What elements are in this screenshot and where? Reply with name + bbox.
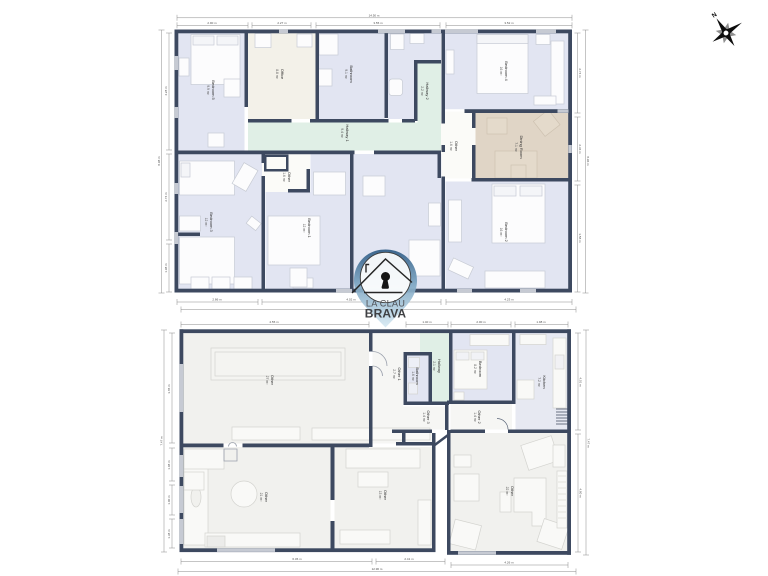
svg-text:Other: Other [510,486,515,497]
svg-text:4.02 m: 4.02 m [346,298,356,302]
svg-text:1.6 m²: 1.6 m² [411,371,415,381]
svg-text:7.1 m²: 7.1 m² [514,142,518,152]
svg-text:2.36 m: 2.36 m [578,144,582,154]
svg-text:8.98 m: 8.98 m [157,156,161,166]
svg-text:Bedroom 3: Bedroom 3 [209,212,214,232]
svg-text:3.58 m: 3.58 m [578,233,582,243]
svg-text:1.98 m: 1.98 m [164,263,168,273]
svg-text:BRAVA: BRAVA [365,307,407,321]
svg-text:12 m²: 12 m² [302,224,306,234]
svg-text:27 m²: 27 m² [265,376,269,386]
svg-text:Other: Other [383,490,388,501]
svg-text:4.55 m: 4.55 m [269,320,279,324]
svg-text:1.98 m: 1.98 m [536,320,546,324]
svg-text:1.6 m²: 1.6 m² [282,172,286,182]
svg-text:4.26 m: 4.26 m [504,561,514,565]
svg-text:8.2 m²: 8.2 m² [473,364,477,374]
svg-text:Kitchen: Kitchen [542,375,547,388]
svg-text:Bedroom 5: Bedroom 5 [211,80,216,100]
svg-text:9.1 m²: 9.1 m² [344,69,348,79]
svg-text:Other 1: Other 1 [397,367,402,381]
svg-text:2.2 m²: 2.2 m² [420,86,424,96]
svg-text:4.23 m: 4.23 m [504,298,514,302]
svg-text:Office: Office [280,69,285,80]
svg-text:22 m²: 22 m² [505,487,509,497]
svg-text:Other: Other [270,375,275,386]
svg-text:9.4 m²: 9.4 m² [340,128,344,138]
svg-text:4.01 m: 4.01 m [579,377,583,387]
svg-text:Bedroom: Bedroom [478,361,483,378]
svg-text:2.00 m: 2.00 m [476,320,486,324]
svg-text:1.00 m: 1.00 m [167,495,171,505]
svg-text:3.52 m: 3.52 m [504,21,514,25]
svg-text:7.47 m: 7.47 m [160,436,164,446]
svg-text:2.7 m²: 2.7 m² [392,369,396,379]
svg-text:7.47 m: 7.47 m [587,438,591,448]
svg-text:12.96 m: 12.96 m [372,567,383,571]
svg-text:N: N [711,11,719,20]
svg-text:Other: Other [264,492,269,503]
svg-text:2.74 m: 2.74 m [164,192,168,202]
svg-text:4.80 m: 4.80 m [579,488,583,498]
svg-text:7.2 m²: 7.2 m² [537,377,541,387]
svg-text:2.1 m²: 2.1 m² [432,361,436,371]
svg-text:Hallway 2: Hallway 2 [425,82,430,100]
svg-text:2.90 m: 2.90 m [207,21,217,25]
svg-text:3.55 m: 3.55 m [373,21,383,25]
svg-text:2.27 m: 2.27 m [277,21,287,25]
svg-text:3.65 m: 3.65 m [167,384,171,394]
svg-text:Bedroom 2: Bedroom 2 [504,222,509,242]
svg-text:Bedroom 4: Bedroom 4 [504,61,509,81]
svg-text:Bathroom: Bathroom [349,65,354,83]
svg-text:1.08 m: 1.08 m [167,460,171,470]
svg-text:9.9 m²: 9.9 m² [206,85,210,95]
svg-text:Hallway 1: Hallway 1 [345,124,350,142]
svg-text:Hallway: Hallway [437,359,442,373]
svg-text:1.4 m²: 1.4 m² [473,412,477,422]
svg-text:12 m²: 12 m² [204,218,208,228]
svg-text:Other: Other [454,141,459,152]
svg-text:8.96 m: 8.96 m [586,156,590,166]
svg-text:8.8 m²: 8.8 m² [275,69,279,79]
svg-text:13 m²: 13 m² [378,491,382,501]
svg-text:1.6 m²: 1.6 m² [449,141,453,151]
svg-text:21 m²: 21 m² [259,493,263,503]
svg-text:6.36 m: 6.36 m [292,557,302,561]
svg-text:2.41 m: 2.41 m [404,557,414,561]
svg-text:16 m²: 16 m² [499,67,503,77]
svg-text:2.86 m: 2.86 m [212,298,222,302]
svg-text:1.38 m: 1.38 m [167,529,171,539]
svg-text:2.74 m: 2.74 m [578,68,582,78]
svg-text:1.40 m: 1.40 m [422,320,432,324]
svg-text:Bedroom 1: Bedroom 1 [307,218,312,238]
svg-text:14.50 m: 14.50 m [369,13,380,17]
svg-text:Dining Room: Dining Room [519,135,524,159]
svg-text:1.4 m²: 1.4 m² [422,412,426,422]
svg-text:4.28 m: 4.28 m [164,86,168,96]
svg-text:16 m²: 16 m² [499,228,503,238]
svg-text:Other: Other [287,172,292,183]
